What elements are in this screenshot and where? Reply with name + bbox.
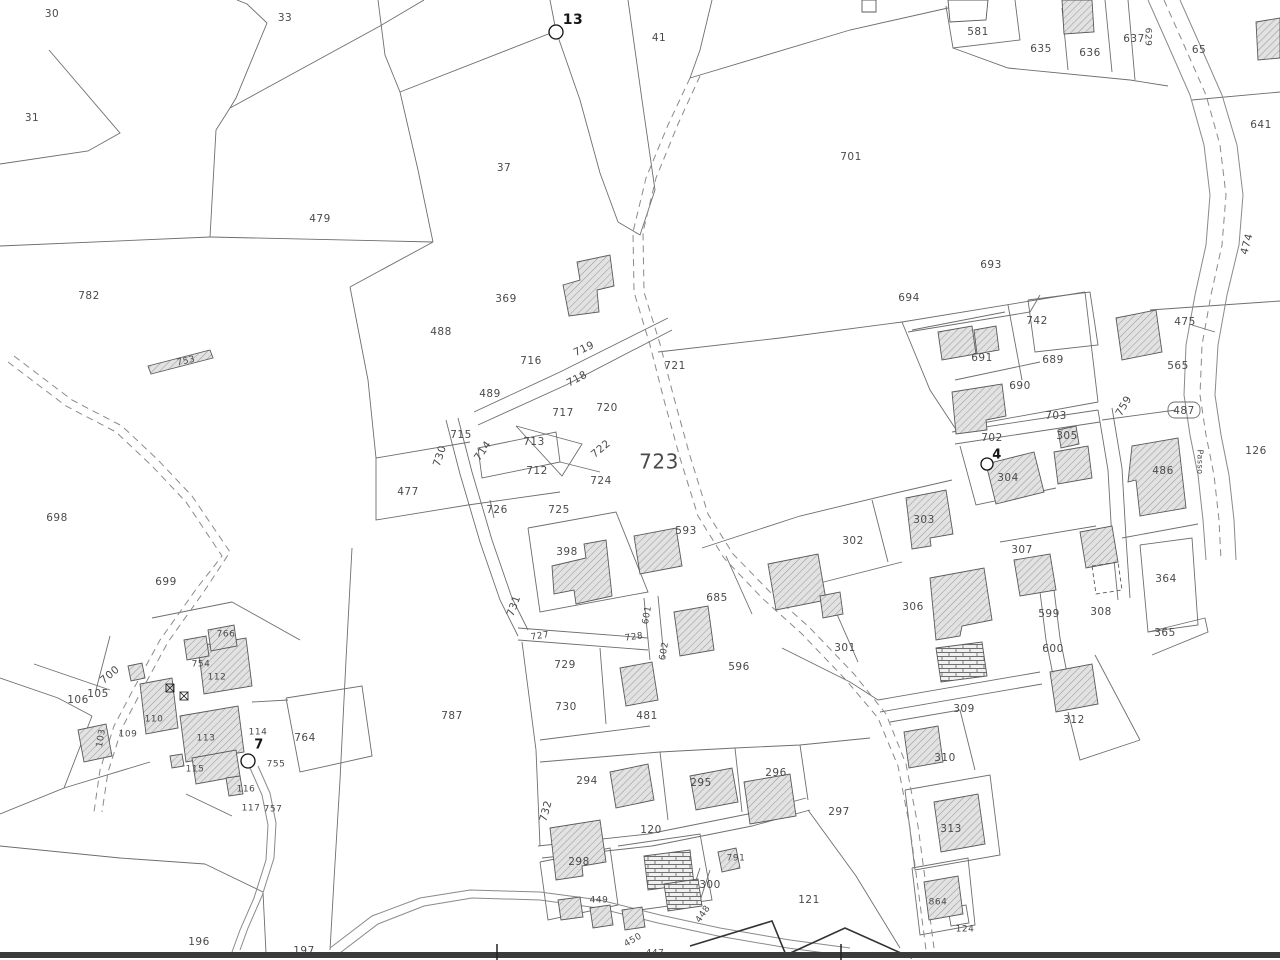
building — [590, 905, 613, 928]
boundary-line — [210, 237, 433, 242]
parcel-label: 364 — [1155, 573, 1177, 585]
boundary-line — [230, 0, 267, 108]
parcel-label: 787 — [441, 710, 463, 722]
building — [622, 907, 645, 930]
parcel-label: 693 — [980, 259, 1002, 271]
building — [563, 255, 614, 316]
parcel-label: 449 — [590, 896, 609, 906]
parcel-label: 629 — [1143, 28, 1153, 47]
building — [610, 764, 654, 808]
parcel-label: 477 — [397, 486, 419, 498]
parcel-label: 308 — [1090, 606, 1112, 618]
parcel-labels: 3033311341374797015816356366376296564178… — [25, 8, 1272, 959]
building — [744, 774, 796, 824]
survey-point-circle — [981, 458, 993, 470]
parcel-label: 766 — [217, 630, 236, 640]
boundary-line — [782, 648, 878, 700]
parcel-label: 728 — [624, 631, 644, 644]
building — [550, 820, 606, 880]
boundary-line — [1085, 292, 1098, 402]
building — [140, 678, 178, 734]
building — [620, 662, 658, 706]
parcel-label: 120 — [640, 824, 662, 836]
parcel-label: 759 — [1113, 394, 1134, 419]
parcel-label: 7 — [254, 738, 264, 753]
boundary-line — [836, 612, 858, 662]
parcel-label: 479 — [309, 213, 331, 225]
boundary-line — [1098, 410, 1118, 600]
parcel-label: 301 — [834, 642, 856, 654]
boundary-line — [400, 92, 433, 242]
boundary-line — [0, 50, 120, 164]
boundary-line — [0, 237, 210, 246]
parcel-label: 599 — [1038, 608, 1060, 620]
parcel-label: 782 — [78, 290, 100, 302]
building — [1116, 310, 1162, 360]
parcel-label: 717 — [552, 407, 574, 419]
building-brick — [936, 642, 987, 682]
boundary-line — [946, 0, 1020, 48]
boundary-line — [286, 686, 372, 772]
boundary-line — [64, 762, 150, 788]
parcel-label: 488 — [430, 326, 452, 338]
parcel-label: 398 — [556, 546, 578, 558]
boundary-line — [522, 642, 540, 846]
road-edge — [336, 898, 848, 956]
parcel-label: 600 — [1042, 643, 1064, 655]
parcel-label: 730 — [431, 444, 449, 468]
building — [768, 554, 826, 610]
buildings — [78, 0, 1280, 930]
parcel-label: 110 — [145, 715, 164, 725]
survey-point-circle — [549, 25, 563, 39]
parcel-label: 726 — [486, 504, 508, 516]
parcel-label: 742 — [1026, 315, 1048, 327]
parcel-label: 602 — [658, 641, 671, 661]
parcel-label: 565 — [1167, 360, 1189, 372]
building — [128, 663, 145, 681]
parcel-label: 714 — [472, 439, 494, 464]
parcel-label: 755 — [267, 760, 286, 770]
parcel-label: 685 — [706, 592, 728, 604]
parcel-label: 694 — [898, 292, 920, 304]
building — [674, 606, 714, 656]
parcel-label: 753 — [176, 355, 196, 369]
parcel-label: 699 — [155, 576, 177, 588]
boundary-line — [1122, 524, 1198, 538]
parcel-label: 114 — [249, 728, 268, 738]
parcel-label: 596 — [728, 661, 750, 673]
parcel-label: 106 — [67, 694, 89, 706]
parcel-label: 723 — [639, 450, 679, 474]
boundary-line — [152, 602, 232, 618]
building — [558, 897, 583, 920]
boundary-line — [618, 0, 655, 235]
parcel-label: 369 — [495, 293, 517, 305]
parcel-label: 365 — [1154, 627, 1176, 639]
parcel-label: 13 — [563, 12, 583, 28]
boundary-line — [330, 548, 352, 950]
parcel-label: 864 — [929, 898, 948, 908]
parcel-label: 296 — [765, 767, 787, 779]
boundary-line — [540, 726, 650, 740]
parcel-label: 729 — [554, 659, 576, 671]
cadastral-map: 3033311341374797015816356366376296564178… — [0, 0, 1280, 960]
parcel-label: Passo — [1196, 449, 1205, 474]
parcel-label: 641 — [1250, 119, 1272, 131]
parcel-label: 721 — [664, 360, 686, 372]
parcel-label: 109 — [119, 730, 138, 740]
building — [184, 636, 209, 660]
boundary-line — [1150, 301, 1280, 310]
boundary-line — [376, 442, 470, 458]
boundary-line — [808, 810, 900, 948]
parcel-label: 115 — [186, 765, 205, 775]
boundary-line — [263, 892, 266, 953]
parcel-label: 732 — [537, 799, 554, 823]
parcel-label: 481 — [636, 710, 658, 722]
building — [820, 592, 843, 618]
building-brick — [664, 879, 702, 911]
parcel-label: 41 — [652, 32, 666, 44]
parcel-label: 294 — [576, 775, 598, 787]
parcel-label: 124 — [956, 925, 975, 935]
parcel-label: 725 — [548, 504, 570, 516]
cadastral-map-canvas: 3033311341374797015816356366376296564178… — [0, 0, 1280, 960]
parcel-label: 702 — [981, 432, 1003, 444]
boundary-line — [400, 31, 556, 92]
parcel-label: 489 — [479, 388, 501, 400]
parcel-label: 305 — [1056, 430, 1078, 442]
parcel-label: 126 — [1245, 445, 1267, 457]
parcel-label: 33 — [278, 12, 292, 24]
parcel-label: 713 — [523, 436, 545, 448]
boundary-line — [376, 458, 468, 520]
parcel-label: 4 — [992, 448, 1002, 463]
parcel-label: 757 — [264, 805, 283, 815]
boundary-line — [1095, 655, 1140, 740]
parcel-label: 722 — [589, 437, 613, 460]
parcel-label: 295 — [690, 777, 712, 789]
parcel-label: 698 — [46, 512, 68, 524]
boundary-line — [560, 462, 600, 472]
parcel-label: 450 — [623, 931, 644, 949]
parcel-label: 754 — [192, 660, 211, 670]
parcel-label: 601 — [641, 605, 654, 625]
building — [1080, 526, 1118, 568]
boundary-line — [800, 745, 808, 800]
parcel-label: 712 — [526, 465, 548, 477]
parcel-label: 690 — [1009, 380, 1031, 392]
boundary-line — [812, 562, 902, 585]
parcel-label: 718 — [565, 369, 590, 390]
parcel-label: 724 — [590, 475, 612, 487]
boundary-line — [205, 864, 263, 892]
parcel-label: 637 — [1123, 33, 1145, 45]
boundary-line — [186, 794, 232, 816]
parcel-label: 486 — [1152, 465, 1174, 477]
boundary-line — [658, 322, 902, 352]
parcel-label: 593 — [675, 525, 697, 537]
parcel-label: 764 — [294, 732, 316, 744]
parcel-label: 474 — [1238, 232, 1255, 256]
parcel-label: 113 — [197, 734, 216, 744]
boundary-line — [0, 846, 205, 864]
parcel-label: 298 — [568, 856, 590, 868]
boundary-line — [1105, 0, 1112, 72]
boundary-line — [1140, 538, 1198, 632]
boundary-line — [474, 318, 668, 412]
building — [1014, 554, 1056, 596]
parcel-label: 581 — [967, 26, 989, 38]
parcel-label: 304 — [997, 472, 1019, 484]
survey-point-circle — [241, 754, 255, 768]
boundary-line — [690, 0, 712, 78]
parcel-label: 116 — [237, 785, 256, 795]
building — [1054, 446, 1092, 484]
parcel-label: 312 — [1063, 714, 1085, 726]
boundary-line — [232, 602, 300, 640]
boundary-line — [556, 31, 618, 222]
sheet-border-bar — [0, 952, 1280, 958]
survey-markers — [166, 25, 1200, 768]
parcel-label: 703 — [1045, 410, 1067, 422]
building — [948, 0, 988, 22]
boundary-line — [468, 492, 560, 505]
building — [1050, 664, 1098, 712]
boundary-line — [600, 648, 606, 724]
parcel-label: 791 — [727, 854, 746, 864]
parcel-label: 65 — [1192, 44, 1206, 56]
boundary-line — [350, 287, 376, 458]
parcel-label: 691 — [971, 352, 993, 364]
parcel-label: 37 — [497, 162, 511, 174]
building — [1092, 562, 1122, 594]
boundary-line — [540, 738, 870, 762]
parcel-label: 307 — [1011, 544, 1033, 556]
parcel-label: 303 — [913, 514, 935, 526]
boundary-line — [872, 500, 888, 562]
parcel-label: 306 — [902, 601, 924, 613]
parcel-label: 117 — [242, 804, 261, 814]
parcel-label: 196 — [188, 936, 210, 948]
building — [1128, 438, 1186, 516]
boundary-line — [350, 242, 433, 287]
parcel-label: 121 — [798, 894, 820, 906]
building — [690, 768, 738, 810]
parcel-label: 727 — [530, 630, 550, 643]
parcel-label: 475 — [1174, 316, 1196, 328]
boundary-line — [955, 362, 1040, 380]
building — [952, 384, 1006, 434]
parcel-label: 716 — [520, 355, 542, 367]
parcel-label: 730 — [555, 701, 577, 713]
boundary-line — [1130, 80, 1168, 86]
building — [862, 0, 876, 12]
parcel-label: 112 — [208, 673, 227, 683]
parcel-label: 635 — [1030, 43, 1052, 55]
parcel-label: 31 — [25, 112, 39, 124]
parcel-label: 313 — [940, 823, 962, 835]
parcel-label: 309 — [953, 703, 975, 715]
building — [974, 326, 999, 354]
parcel-label: 105 — [87, 688, 109, 700]
parcel-label: 310 — [934, 752, 956, 764]
parcel-label: 300 — [699, 879, 721, 891]
parcel-label: 302 — [842, 535, 864, 547]
parcel-label: 636 — [1079, 47, 1101, 59]
building — [1062, 0, 1094, 34]
parcel-label: 701 — [840, 151, 862, 163]
boundary-line — [908, 295, 1040, 332]
boundary-line — [252, 700, 288, 702]
survey-cross-icon — [180, 692, 188, 700]
parcel-label: 297 — [828, 806, 850, 818]
parcel-label: 715 — [450, 429, 472, 441]
boundary-line — [378, 0, 400, 92]
boundary-line — [210, 108, 230, 237]
building — [930, 568, 992, 640]
road-edge — [1180, 0, 1243, 560]
boundary-line — [660, 752, 668, 820]
parcel-label: 30 — [45, 8, 59, 20]
boundary-line — [690, 8, 948, 78]
building — [1256, 18, 1280, 60]
parcel-label: 720 — [596, 402, 618, 414]
boundary-line — [230, 0, 424, 108]
parcel-label: 487 — [1173, 405, 1195, 417]
parcel-label: 689 — [1042, 354, 1064, 366]
building — [170, 754, 184, 768]
